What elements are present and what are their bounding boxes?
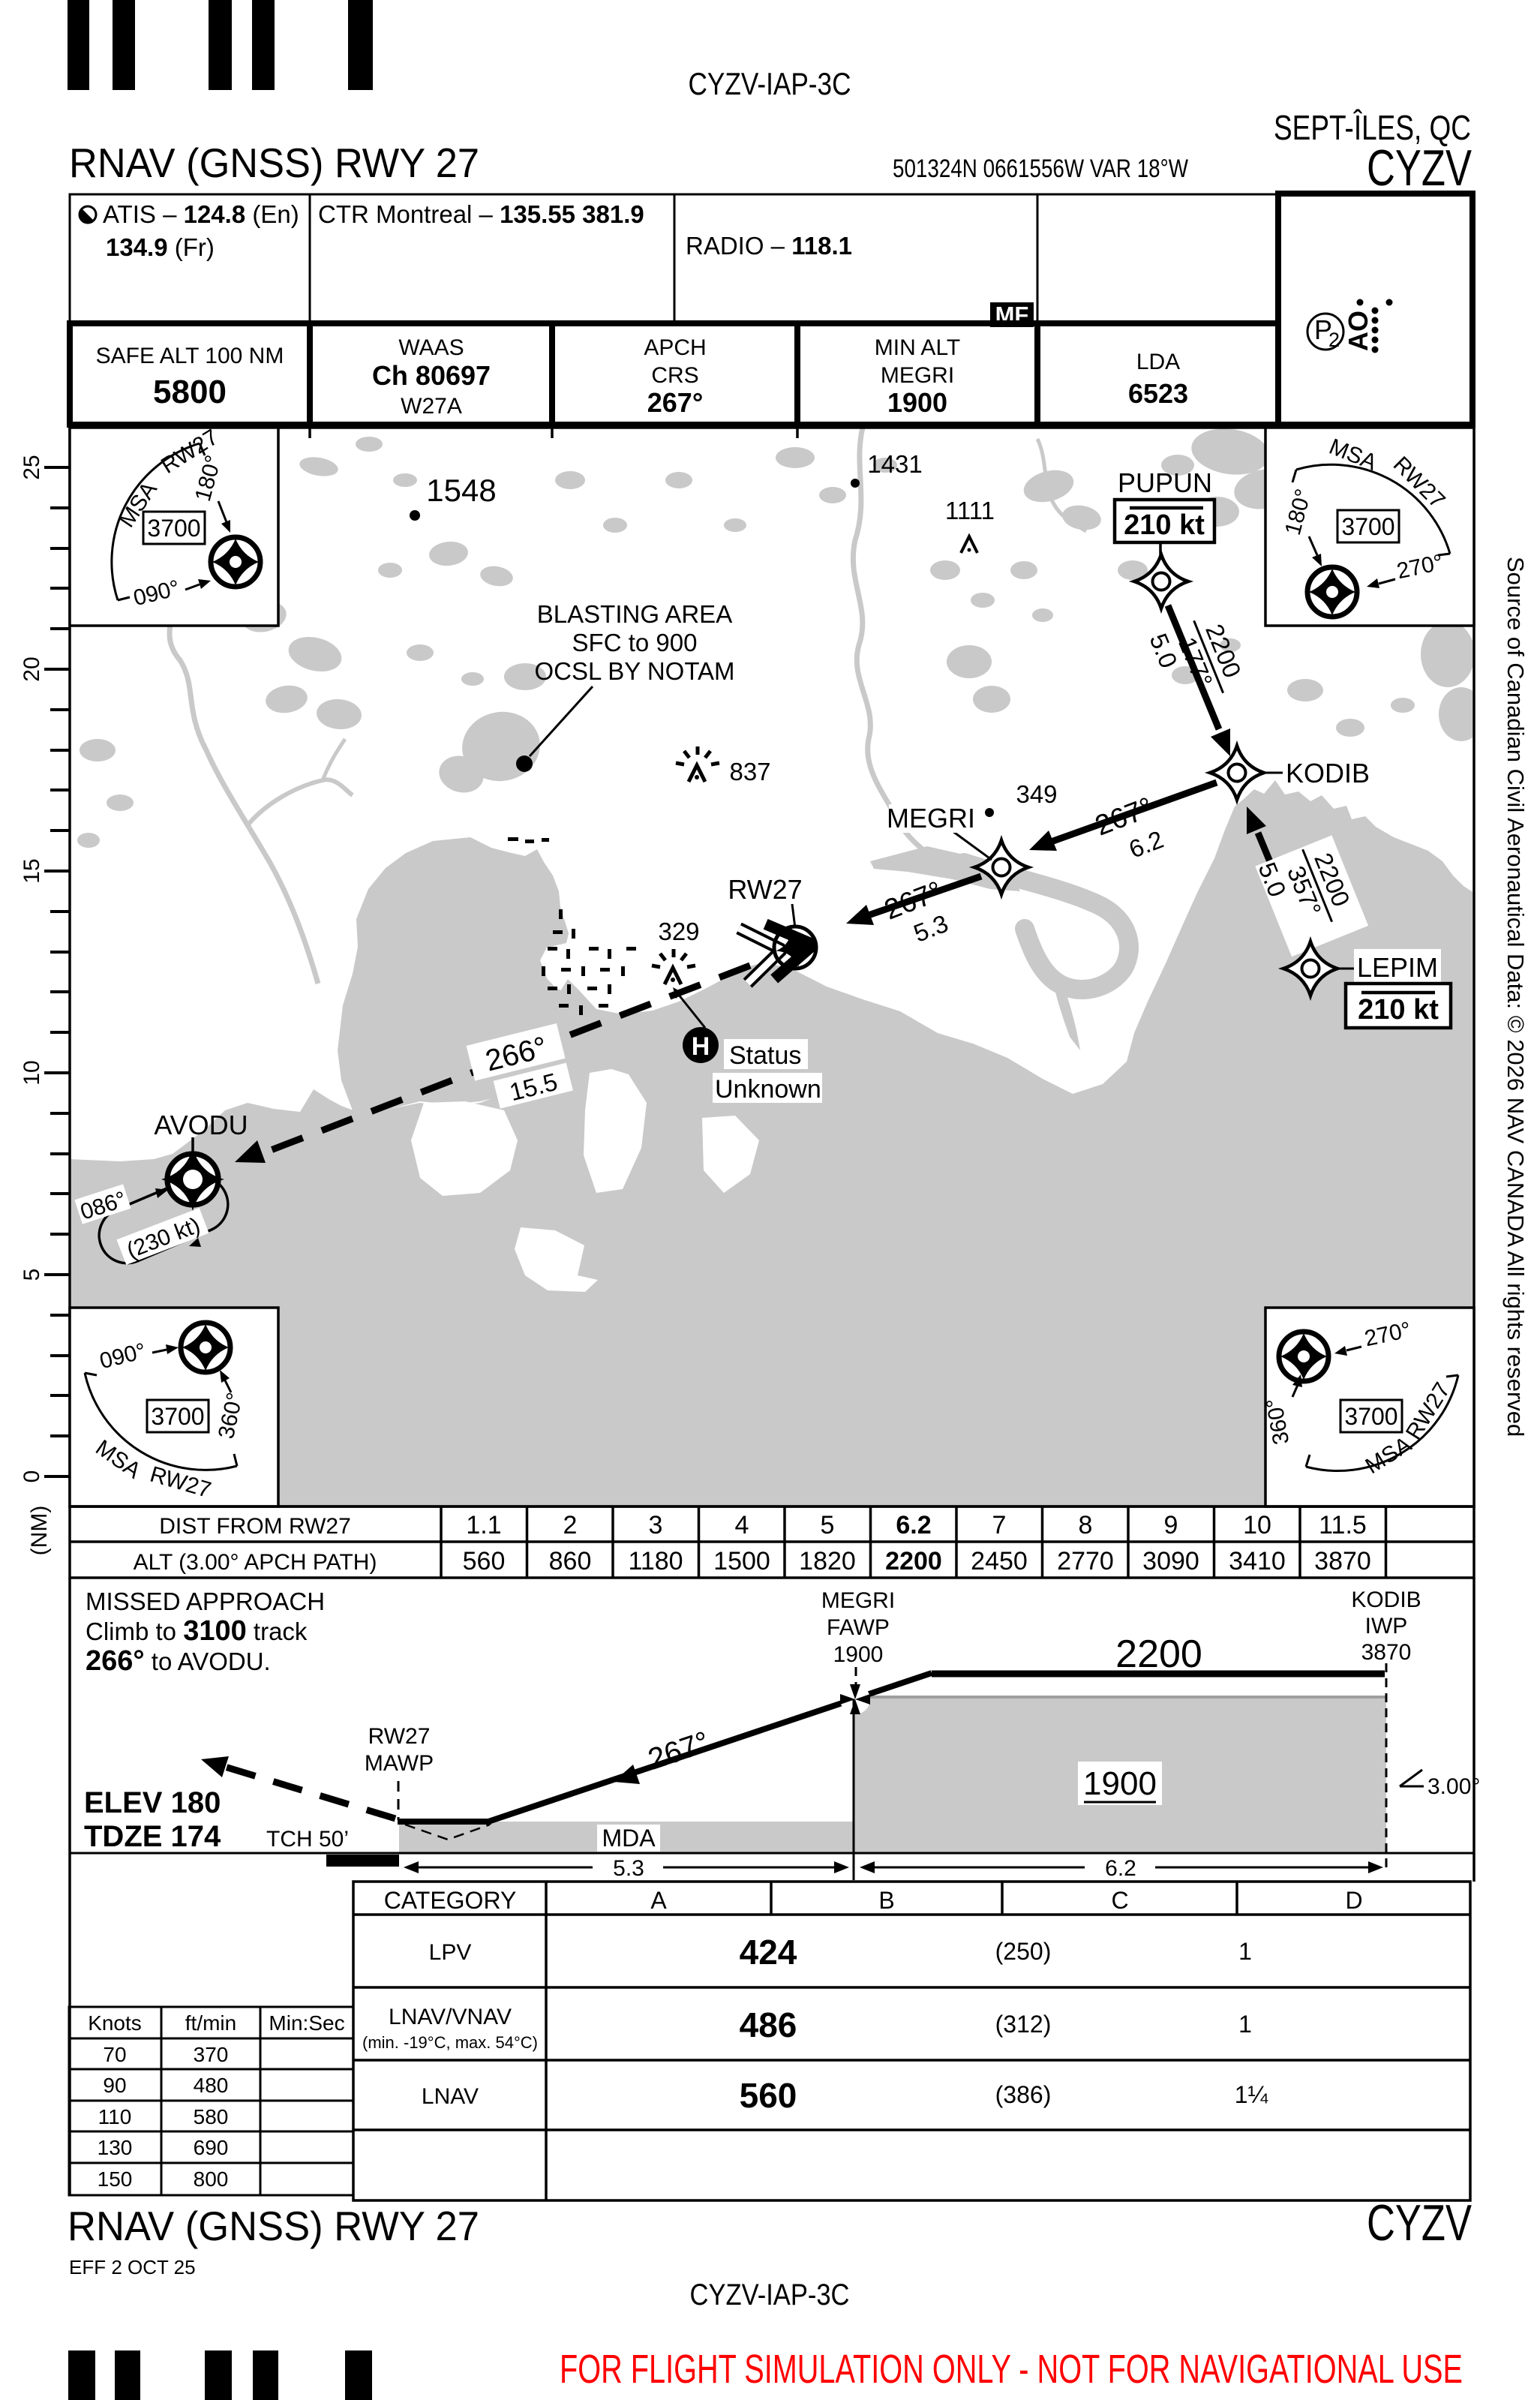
svg-text:WAAS: WAAS xyxy=(398,335,464,360)
svg-text:3410: 3410 xyxy=(1229,1547,1286,1575)
svg-text:(min. -19°C, max. 54°C): (min. -19°C, max. 54°C) xyxy=(362,2033,538,2052)
svg-text:70: 70 xyxy=(103,2043,126,2066)
svg-text:(386): (386) xyxy=(995,2081,1052,2108)
svg-text:9: 9 xyxy=(1164,1511,1178,1539)
svg-text:25: 25 xyxy=(20,455,44,479)
svg-text:1180: 1180 xyxy=(628,1547,683,1575)
svg-text:APCH: APCH xyxy=(644,335,706,360)
svg-text:1900: 1900 xyxy=(1083,1765,1157,1802)
svg-text:(NM): (NM) xyxy=(27,1506,52,1556)
svg-text:5: 5 xyxy=(20,1269,44,1281)
svg-text:90: 90 xyxy=(103,2074,126,2097)
svg-text:349: 349 xyxy=(1016,780,1057,808)
svg-text:6.2: 6.2 xyxy=(896,1511,931,1539)
svg-text:130: 130 xyxy=(98,2136,133,2159)
svg-text:8: 8 xyxy=(1079,1511,1093,1539)
svg-text:800: 800 xyxy=(194,2167,229,2191)
svg-text:MDA: MDA xyxy=(602,1825,656,1852)
svg-text:3700: 3700 xyxy=(1341,513,1394,540)
svg-text:RADIO – 118.1: RADIO – 118.1 xyxy=(686,232,852,260)
svg-text:2200: 2200 xyxy=(885,1547,942,1575)
svg-text:3.00°: 3.00° xyxy=(1427,1774,1480,1799)
svg-text:560: 560 xyxy=(463,1547,506,1575)
svg-text:CRS: CRS xyxy=(651,363,698,388)
svg-text:MEGRI: MEGRI xyxy=(821,1588,895,1613)
svg-text:3: 3 xyxy=(649,1511,663,1539)
svg-text:501324N 0661556W VAR 18°W: 501324N 0661556W VAR 18°W xyxy=(893,155,1188,183)
svg-text:1900: 1900 xyxy=(887,387,947,418)
svg-text:RNAV (GNSS) RWY 27: RNAV (GNSS) RWY 27 xyxy=(69,140,479,186)
svg-text:20: 20 xyxy=(20,656,44,681)
svg-text:EFF 2 OCT 25: EFF 2 OCT 25 xyxy=(69,2256,196,2278)
svg-text:MIN ALT: MIN ALT xyxy=(875,335,960,360)
svg-text:MEGRI: MEGRI xyxy=(881,363,954,388)
svg-text:D: D xyxy=(1345,1887,1362,1914)
svg-text:LDA: LDA xyxy=(1136,350,1180,374)
svg-text:ELEV 180: ELEV 180 xyxy=(84,1786,221,1819)
svg-text:W27A: W27A xyxy=(401,394,462,419)
svg-text:AO: AO xyxy=(1343,311,1373,351)
svg-text:CYZV-IAP-3C: CYZV-IAP-3C xyxy=(689,66,851,101)
svg-text:0: 0 xyxy=(20,1470,44,1483)
svg-text:OCSL BY NOTAM: OCSL BY NOTAM xyxy=(534,657,734,685)
svg-text:134.9 (Fr): 134.9 (Fr) xyxy=(106,233,215,261)
svg-text:2: 2 xyxy=(563,1511,578,1539)
svg-text:10: 10 xyxy=(20,1060,44,1085)
svg-text:MISSED APPROACH: MISSED APPROACH xyxy=(86,1587,325,1615)
svg-text:3870: 3870 xyxy=(1361,1640,1412,1665)
svg-text:3700: 3700 xyxy=(151,1403,204,1430)
svg-text:3090: 3090 xyxy=(1142,1547,1199,1575)
svg-text:15: 15 xyxy=(20,858,44,883)
svg-text:2770: 2770 xyxy=(1057,1547,1114,1575)
svg-text:267°: 267° xyxy=(647,387,703,418)
svg-text:RW27: RW27 xyxy=(368,1724,431,1749)
svg-text:1.1: 1.1 xyxy=(466,1511,501,1539)
svg-text:486: 486 xyxy=(740,2005,797,2044)
svg-text:3700: 3700 xyxy=(1344,1403,1397,1430)
svg-text:(312): (312) xyxy=(995,2011,1052,2038)
svg-text:1111: 1111 xyxy=(945,497,995,524)
svg-text:110: 110 xyxy=(98,2105,132,2128)
svg-text:424: 424 xyxy=(740,1933,797,1972)
svg-text:6.2: 6.2 xyxy=(1105,1856,1136,1881)
svg-text:5800: 5800 xyxy=(153,374,227,410)
svg-text:SAFE ALT 100 NM: SAFE ALT 100 NM xyxy=(96,344,284,368)
svg-text:2450: 2450 xyxy=(971,1547,1028,1575)
svg-text:150: 150 xyxy=(98,2167,133,2191)
svg-text:1: 1 xyxy=(1238,1938,1252,1965)
svg-text:Status: Status xyxy=(729,1041,801,1070)
svg-text:MAWP: MAWP xyxy=(365,1751,434,1776)
svg-text:(250): (250) xyxy=(995,1938,1052,1965)
svg-text:210 kt: 210 kt xyxy=(1124,509,1205,541)
svg-text:560: 560 xyxy=(740,2076,797,2115)
svg-text:CYZV: CYZV xyxy=(1367,2194,1472,2251)
svg-text:1500: 1500 xyxy=(713,1547,770,1575)
svg-text:LNAV/VNAV: LNAV/VNAV xyxy=(389,2005,512,2029)
svg-text:KODIB: KODIB xyxy=(1286,758,1370,788)
svg-text:TCH 50’: TCH 50’ xyxy=(266,1827,349,1852)
svg-text:Knots: Knots xyxy=(88,2011,142,2035)
svg-text:RW27: RW27 xyxy=(728,874,802,905)
svg-text:1820: 1820 xyxy=(799,1547,856,1575)
svg-text:837: 837 xyxy=(729,758,770,785)
svg-text:210 kt: 210 kt xyxy=(1358,994,1439,1026)
svg-text:H: H xyxy=(692,1032,710,1061)
svg-text:LEPIM: LEPIM xyxy=(1357,952,1438,983)
svg-text:TDZE 174: TDZE 174 xyxy=(84,1820,221,1853)
svg-text:Min:Sec: Min:Sec xyxy=(269,2011,344,2035)
svg-text:CATEGORY: CATEGORY xyxy=(384,1887,517,1914)
svg-text:PUPUN: PUPUN xyxy=(1118,467,1212,498)
svg-text:LPV: LPV xyxy=(429,1940,472,1965)
svg-text:CTR Montreal – 135.55 381.9: CTR Montreal – 135.55 381.9 xyxy=(318,200,644,228)
svg-text:IWP: IWP xyxy=(1365,1614,1408,1639)
svg-text:1900: 1900 xyxy=(833,1642,884,1667)
svg-text:7: 7 xyxy=(992,1511,1007,1539)
svg-text:A: A xyxy=(650,1887,667,1914)
svg-text:ft/min: ft/min xyxy=(185,2011,236,2035)
svg-text:B: B xyxy=(878,1887,894,1914)
svg-text:580: 580 xyxy=(194,2105,229,2128)
svg-text:480: 480 xyxy=(194,2074,229,2097)
svg-text:AVODU: AVODU xyxy=(154,1110,248,1140)
svg-text:1¼: 1¼ xyxy=(1235,2081,1269,2108)
svg-text:CYZV: CYZV xyxy=(1367,140,1472,197)
svg-text:6523: 6523 xyxy=(1128,378,1188,409)
svg-text:10: 10 xyxy=(1243,1511,1271,1539)
svg-text:Ch 80697: Ch 80697 xyxy=(372,360,491,391)
svg-text:5.3: 5.3 xyxy=(613,1856,644,1881)
svg-text:MEGRI: MEGRI xyxy=(887,803,975,834)
svg-text:2: 2 xyxy=(1328,329,1340,351)
svg-text:3870: 3870 xyxy=(1314,1547,1371,1575)
svg-text:1: 1 xyxy=(1238,2011,1252,2038)
svg-text:DIST FROM RW27: DIST FROM RW27 xyxy=(159,1514,351,1539)
svg-text:ATIS – 124.8 (En): ATIS – 124.8 (En) xyxy=(103,200,299,228)
svg-text:266° to AVODU.: 266° to AVODU. xyxy=(86,1645,271,1677)
svg-text:11.5: 11.5 xyxy=(1319,1511,1367,1539)
svg-text:4: 4 xyxy=(735,1511,749,1539)
svg-text:Unknown: Unknown xyxy=(715,1075,821,1104)
svg-text:CYZV-IAP-3C: CYZV-IAP-3C xyxy=(690,2278,850,2311)
svg-text:ALT (3.00° APCH PATH): ALT (3.00° APCH PATH) xyxy=(134,1550,377,1575)
svg-text:LNAV: LNAV xyxy=(422,2084,479,2109)
svg-text:Source of Canadian Civil Aeron: Source of Canadian Civil Aeronautical Da… xyxy=(1502,557,1529,1437)
svg-text:FAWP: FAWP xyxy=(827,1615,890,1640)
svg-text:FOR FLIGHT SIMULATION ONLY - N: FOR FLIGHT SIMULATION ONLY - NOT FOR NAV… xyxy=(560,2347,1463,2392)
svg-text:SFC to 900: SFC to 900 xyxy=(572,629,698,656)
svg-text:KODIB: KODIB xyxy=(1351,1587,1421,1612)
svg-text:RNAV (GNSS) RWY 27: RNAV (GNSS) RWY 27 xyxy=(68,2203,479,2249)
svg-text:BLASTING AREA: BLASTING AREA xyxy=(537,600,732,628)
svg-text:370: 370 xyxy=(194,2043,229,2066)
svg-text:Climb to 3100 track: Climb to 3100 track xyxy=(86,1615,308,1647)
svg-text:2200: 2200 xyxy=(1115,1633,1202,1676)
svg-text:690: 690 xyxy=(194,2136,229,2159)
svg-text:C: C xyxy=(1111,1887,1128,1914)
svg-text:1548: 1548 xyxy=(426,473,496,508)
svg-text:5: 5 xyxy=(821,1511,835,1539)
svg-text:860: 860 xyxy=(549,1547,592,1575)
svg-text:3700: 3700 xyxy=(147,515,200,542)
svg-text:329: 329 xyxy=(658,918,699,945)
svg-text:1431: 1431 xyxy=(867,450,922,478)
